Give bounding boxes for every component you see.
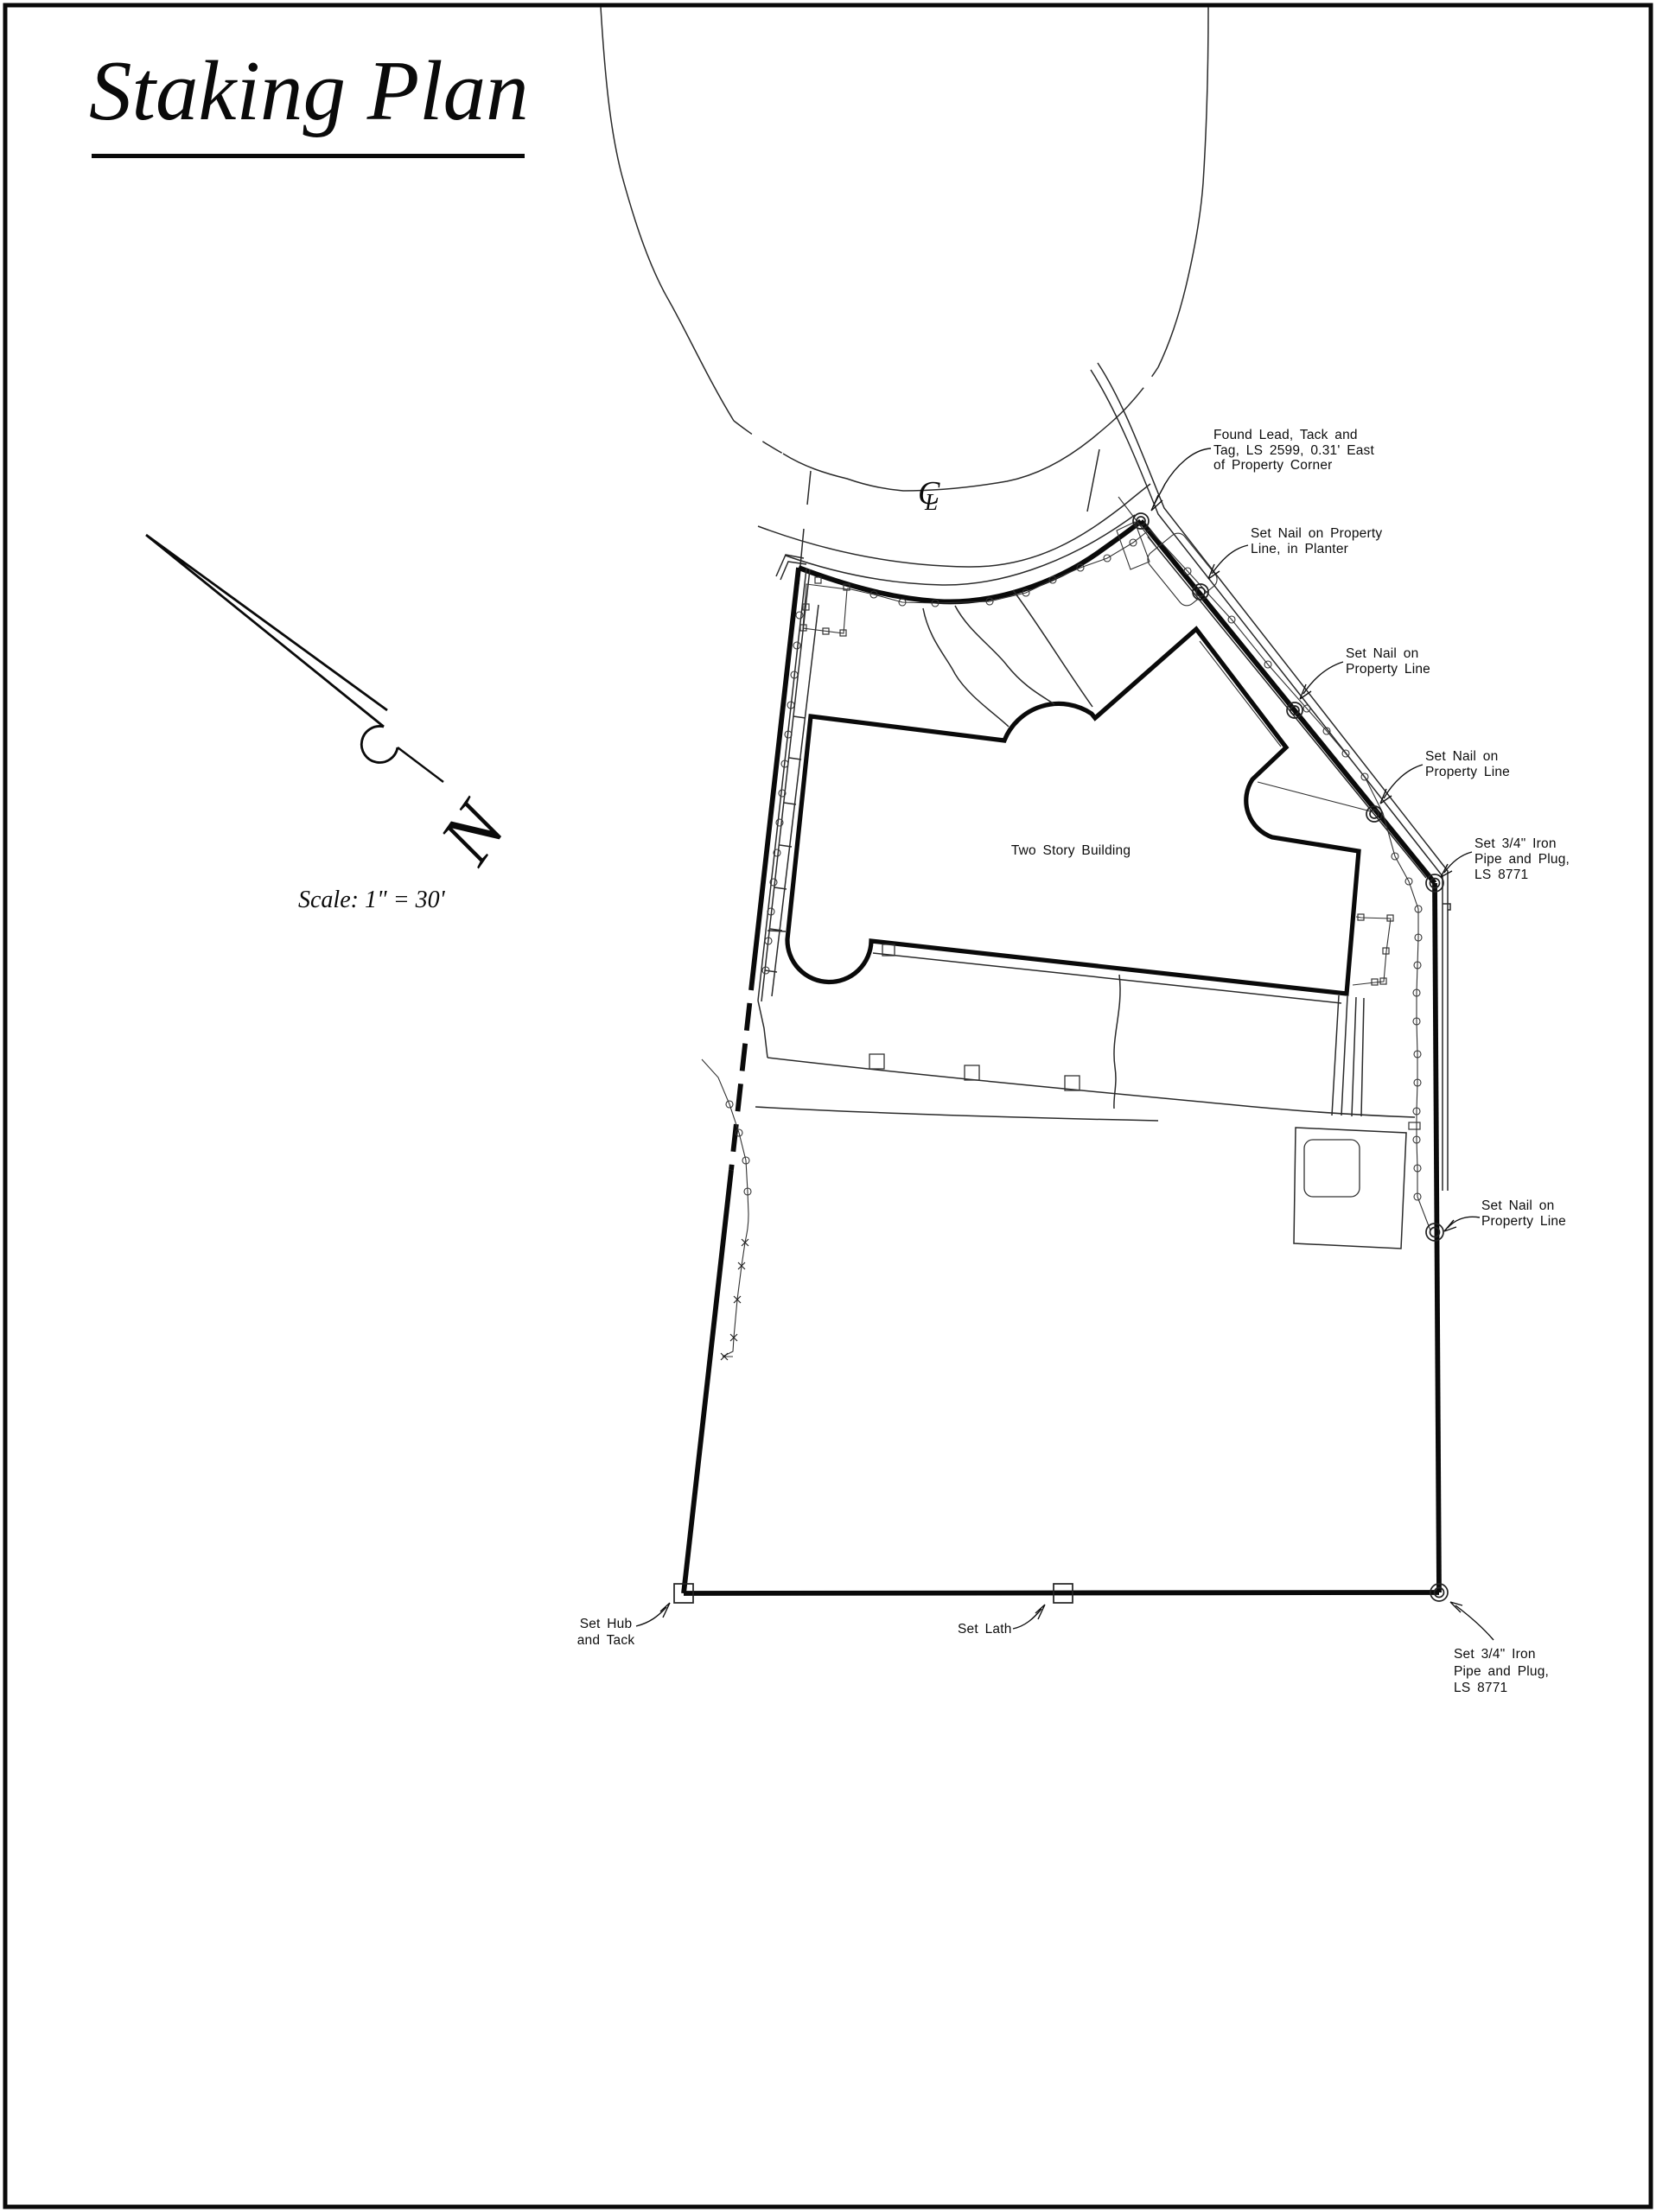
svg-text:LS 8771: LS 8771: [1474, 868, 1528, 882]
svg-text:Scale: 1" = 30': Scale: 1" = 30': [298, 887, 446, 913]
svg-text:Property Line: Property Line: [1481, 1214, 1566, 1229]
svg-text:Set Nail on: Set Nail on: [1346, 646, 1418, 661]
svg-text:Property Line: Property Line: [1425, 765, 1510, 779]
svg-text:Set 3/4" Iron: Set 3/4" Iron: [1454, 1647, 1536, 1662]
svg-text:Set Nail on: Set Nail on: [1481, 1198, 1554, 1213]
svg-text:Set 3/4" Iron: Set 3/4" Iron: [1474, 836, 1557, 851]
svg-text:Set Nail on Property: Set Nail on Property: [1251, 526, 1382, 541]
svg-text:L: L: [924, 489, 938, 515]
svg-text:Staking Plan: Staking Plan: [89, 44, 529, 138]
svg-text:Pipe and Plug,: Pipe and Plug,: [1454, 1664, 1549, 1679]
svg-text:Tag, LS 2599, 0.31' East: Tag, LS 2599, 0.31' East: [1213, 443, 1375, 458]
svg-text:of Property Corner: of Property Corner: [1213, 458, 1333, 473]
svg-text:Set Lath: Set Lath: [958, 1622, 1012, 1637]
svg-text:Pipe and Plug,: Pipe and Plug,: [1474, 852, 1570, 867]
svg-text:Set Hub: Set Hub: [580, 1617, 633, 1631]
svg-text:Property Line: Property Line: [1346, 662, 1430, 677]
svg-text:Line, in Planter: Line, in Planter: [1251, 542, 1348, 556]
svg-text:Set Nail on: Set Nail on: [1425, 749, 1498, 764]
svg-text:Found Lead, Tack and: Found Lead, Tack and: [1213, 428, 1358, 442]
svg-text:LS 8771: LS 8771: [1454, 1681, 1507, 1695]
svg-text:and Tack: and Tack: [577, 1633, 635, 1648]
svg-text:Two Story Building: Two Story Building: [1011, 843, 1131, 858]
